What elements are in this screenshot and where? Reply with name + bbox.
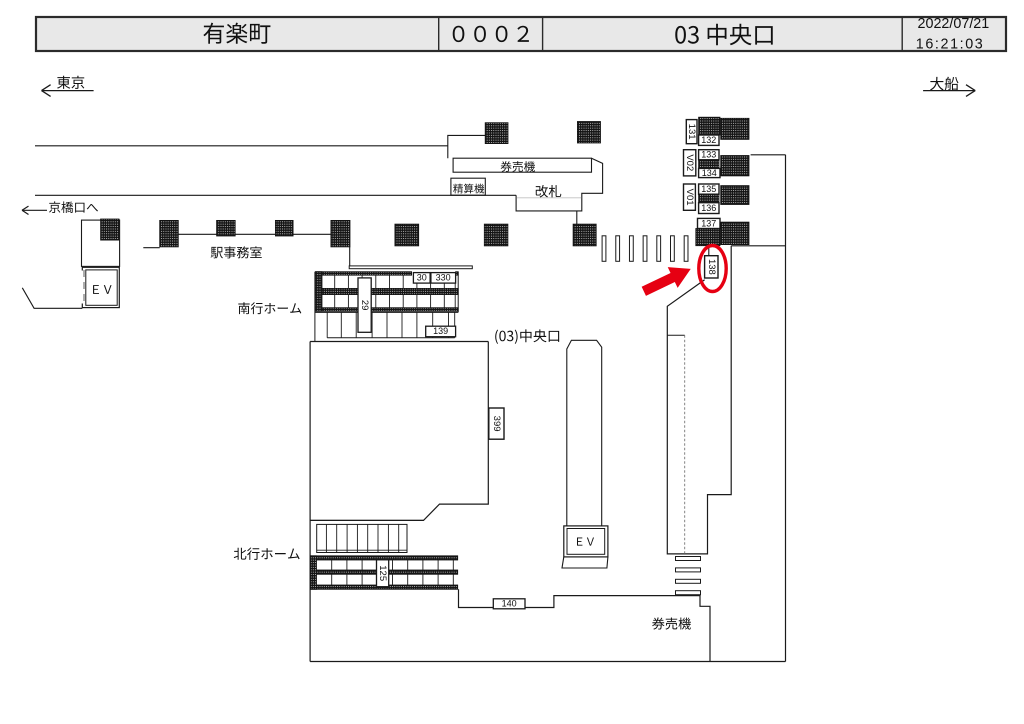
svg-text:330: 330 <box>436 273 451 283</box>
svg-text:16:21:03: 16:21:03 <box>916 36 985 52</box>
svg-text:134: 134 <box>702 168 717 178</box>
svg-text:29: 29 <box>359 300 370 311</box>
svg-text:2022/07/21: 2022/07/21 <box>918 16 990 32</box>
svg-text:135: 135 <box>701 184 716 194</box>
svg-text:137: 137 <box>701 218 716 228</box>
svg-text:399: 399 <box>491 416 502 432</box>
svg-text:136: 136 <box>701 203 716 213</box>
svg-text:V02: V02 <box>684 154 695 171</box>
svg-text:30: 30 <box>417 273 427 283</box>
svg-text:132: 132 <box>701 135 716 145</box>
svg-text:139: 139 <box>433 326 448 336</box>
svg-text:138: 138 <box>706 259 717 275</box>
svg-text:133: 133 <box>701 150 716 160</box>
svg-text:140: 140 <box>502 599 517 609</box>
svg-text:V01: V01 <box>684 189 695 206</box>
svg-text:131: 131 <box>686 124 697 140</box>
svg-text:125: 125 <box>377 565 388 581</box>
